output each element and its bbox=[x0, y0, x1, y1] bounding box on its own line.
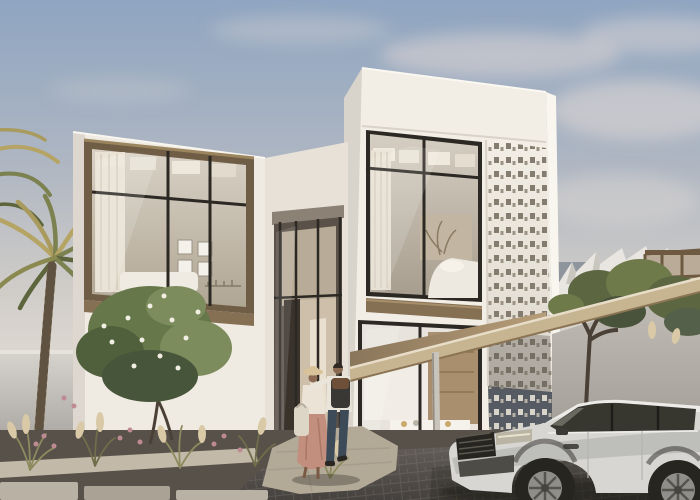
garden-wall-cap bbox=[0, 350, 80, 354]
door-mirror bbox=[556, 428, 568, 435]
pillow bbox=[440, 260, 464, 272]
clerestory-pane bbox=[172, 161, 200, 174]
headboard-art bbox=[420, 215, 472, 260]
bedroom-window bbox=[366, 130, 482, 302]
villa-render-image bbox=[0, 0, 700, 500]
perforated-screen bbox=[486, 140, 556, 466]
couple-shadow bbox=[292, 474, 360, 486]
backpack-flap bbox=[332, 378, 349, 389]
clerestory-pane bbox=[455, 154, 475, 167]
man-shoe-left bbox=[325, 461, 335, 466]
render-canvas bbox=[0, 0, 700, 500]
tote-bag bbox=[294, 406, 309, 436]
left-block-corner-shade bbox=[73, 132, 85, 445]
clerestory-pane bbox=[208, 164, 236, 177]
main-block bbox=[344, 68, 562, 470]
